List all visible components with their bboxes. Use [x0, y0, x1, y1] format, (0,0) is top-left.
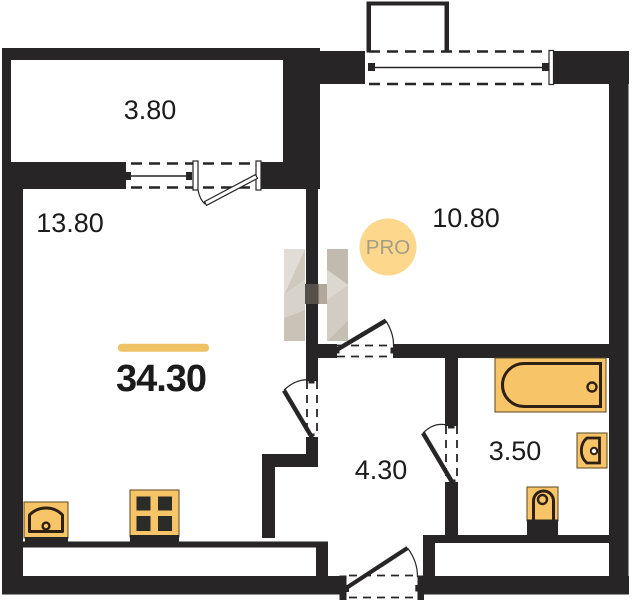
svg-text:3.50: 3.50: [489, 436, 542, 466]
svg-text:34.30: 34.30: [116, 358, 206, 400]
svg-text:13.80: 13.80: [36, 208, 104, 238]
svg-text:4.30: 4.30: [355, 455, 408, 485]
svg-text:3.80: 3.80: [124, 95, 177, 125]
svg-text:10.80: 10.80: [432, 203, 500, 233]
svg-text:PRO: PRO: [366, 236, 410, 259]
